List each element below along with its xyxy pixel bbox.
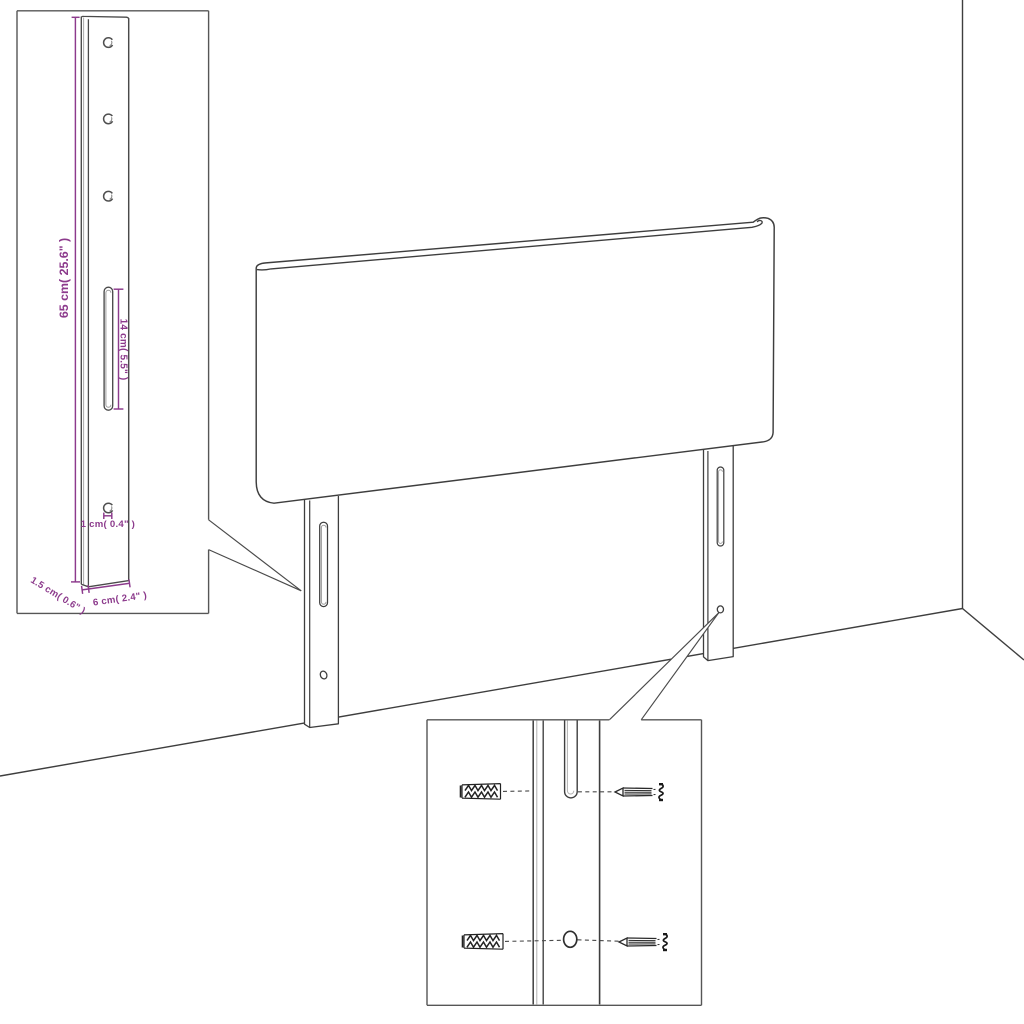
svg-text:14 cm( 5.5" ): 14 cm( 5.5" ) — [117, 319, 128, 381]
svg-text:65 cm( 25.6" ): 65 cm( 25.6" ) — [57, 238, 71, 318]
svg-text:1 cm( 0.4" ): 1 cm( 0.4" ) — [81, 519, 135, 530]
